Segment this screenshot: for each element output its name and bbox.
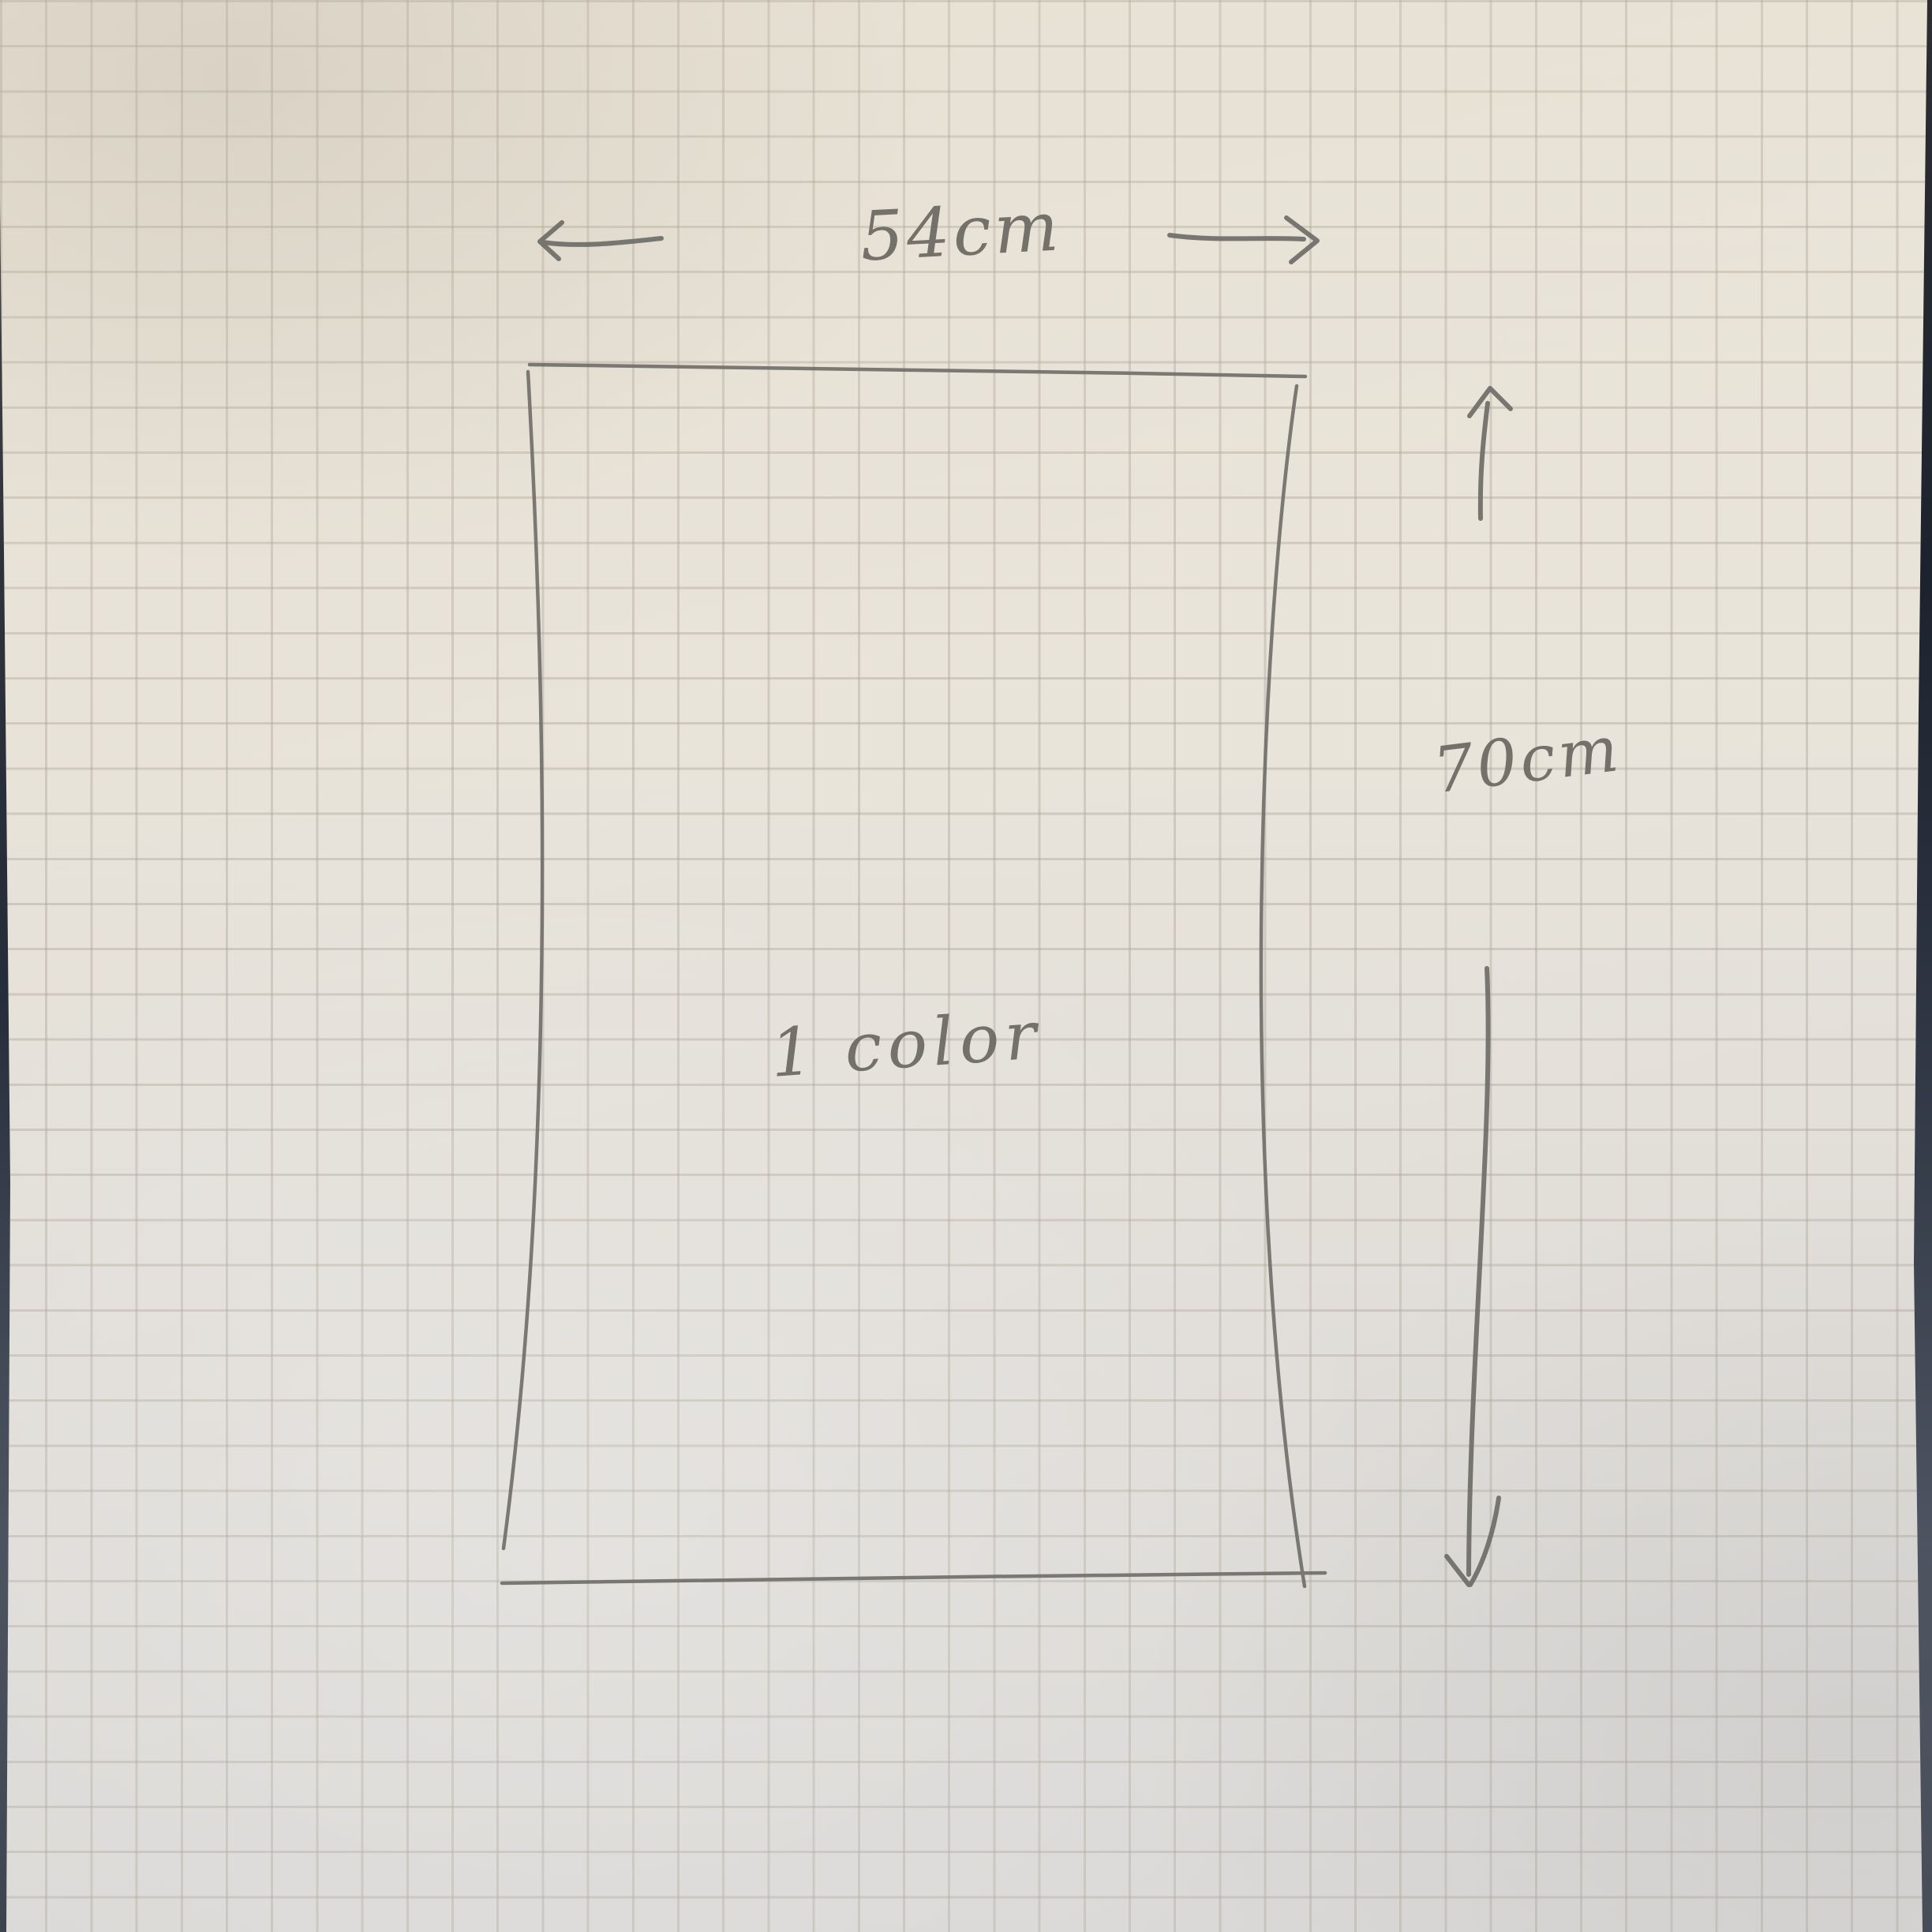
pencil-sketch (0, 0, 1932, 1932)
width-dimension-label: 54cm (859, 187, 1064, 276)
height-dimension-arrows (1447, 388, 1511, 1585)
arrow-up-icon (1470, 388, 1511, 519)
arrow-right-icon (1170, 218, 1317, 262)
arrow-left-icon (540, 223, 661, 259)
arrow-down-icon (1447, 968, 1499, 1585)
photo-of-sketch: { "scene": { "background_color": "#22293… (0, 0, 1932, 1932)
rectangle-top-edge (530, 365, 1305, 376)
rectangle-outline (502, 365, 1325, 1586)
rectangle-right-edge (1261, 386, 1305, 1586)
rectangle-bottom-edge (502, 1573, 1325, 1583)
rectangle-left-edge (504, 372, 542, 1548)
